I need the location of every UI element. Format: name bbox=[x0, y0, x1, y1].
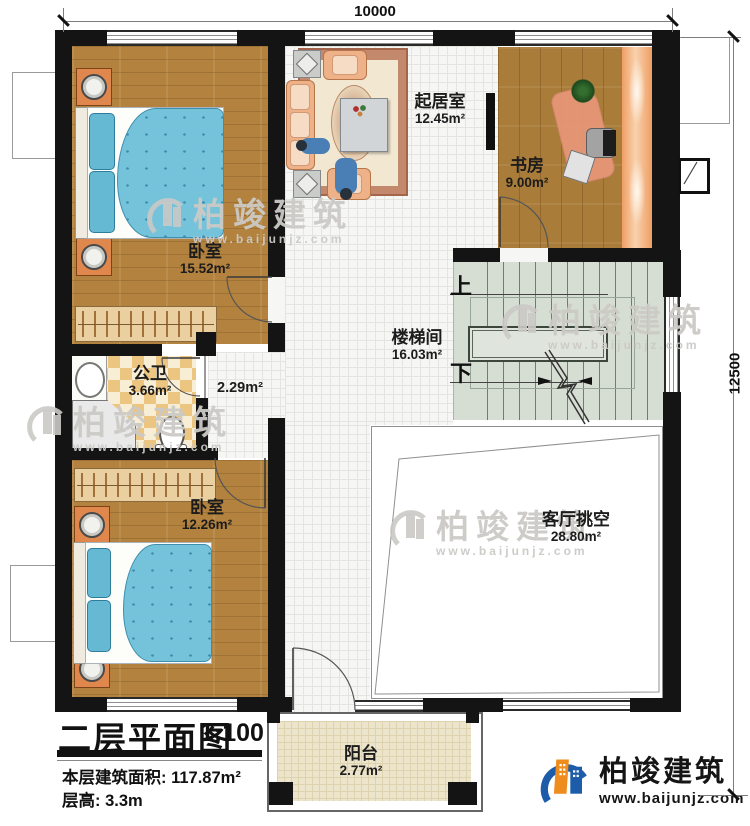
room-label-balcony: 阳台 2.77m² bbox=[318, 744, 404, 778]
lamp-icon bbox=[81, 74, 107, 100]
pillow bbox=[89, 171, 115, 233]
room-area: 3.66m² bbox=[108, 383, 192, 398]
wall bbox=[55, 448, 218, 460]
side-table bbox=[293, 170, 321, 198]
lamp-icon bbox=[81, 244, 107, 270]
room-label-bedroom-bottom: 卧室 12.26m² bbox=[152, 498, 262, 532]
room-area: 12.45m² bbox=[396, 111, 484, 126]
table-flowers bbox=[352, 104, 368, 118]
window bbox=[515, 30, 652, 46]
room-name: 公卫 bbox=[108, 364, 192, 383]
room-label-void: 客厅挑空 28.80m² bbox=[524, 510, 628, 544]
wall bbox=[433, 30, 515, 46]
wall bbox=[268, 323, 285, 352]
sink bbox=[75, 362, 105, 398]
pillow bbox=[89, 113, 115, 170]
flip-window bbox=[678, 158, 710, 194]
title-divider bbox=[57, 750, 262, 757]
sofa-cushion bbox=[290, 112, 310, 138]
room-area: 15.52m² bbox=[150, 261, 260, 276]
floor-height-line: 层高: 3.3m bbox=[62, 787, 143, 811]
right-bay-platform bbox=[678, 37, 730, 124]
floor-area-value: 117.87m² bbox=[171, 769, 241, 787]
lamp-icon bbox=[79, 512, 105, 538]
floor-area-line: 本层建筑面积: 117.87m² bbox=[62, 764, 241, 788]
brand-logo: 柏竣建筑 www.baijunjz.com bbox=[537, 752, 744, 812]
sofa bbox=[286, 80, 315, 170]
nightstand bbox=[76, 68, 112, 106]
floor-height-value: 3.3m bbox=[105, 792, 143, 810]
study-window-light bbox=[622, 47, 652, 248]
wall bbox=[55, 697, 107, 712]
floor-plan-canvas: 柏竣建筑www.baijunjz.com 柏竣建筑www.baijunjz.co… bbox=[0, 0, 750, 826]
title-divider-thin bbox=[57, 760, 262, 761]
brand-logo-icon bbox=[537, 752, 591, 812]
room-name: 卧室 bbox=[152, 498, 262, 517]
wall bbox=[55, 30, 72, 712]
wall bbox=[423, 698, 503, 712]
stair-up-label: 上 bbox=[450, 269, 472, 301]
room-label-living: 起居室 12.45m² bbox=[396, 92, 484, 126]
nightstand bbox=[74, 506, 110, 544]
pillow bbox=[87, 600, 111, 652]
dim-line-right bbox=[733, 37, 734, 795]
balcony-fixed-panel bbox=[355, 700, 423, 712]
wall bbox=[652, 30, 680, 250]
window bbox=[305, 30, 433, 46]
door-opening bbox=[500, 248, 548, 262]
room-name: 楼梯间 bbox=[370, 328, 464, 347]
window bbox=[107, 30, 237, 46]
room-label-bathroom: 公卫 3.66m² bbox=[108, 364, 192, 398]
wall bbox=[268, 455, 285, 712]
wall bbox=[268, 30, 285, 277]
wall bbox=[55, 344, 162, 356]
balcony-stub-left bbox=[267, 712, 280, 723]
person-head bbox=[296, 140, 307, 151]
tv bbox=[486, 93, 495, 150]
room-area: 9.00m² bbox=[485, 175, 569, 190]
wall bbox=[548, 248, 680, 262]
sofa-cushion bbox=[290, 84, 310, 110]
stair-down-label: 下 bbox=[450, 356, 472, 388]
wall bbox=[630, 698, 680, 712]
balcony-stub-right bbox=[466, 712, 479, 723]
stair-up-line bbox=[450, 294, 608, 295]
bed-blanket bbox=[123, 544, 212, 662]
window bbox=[107, 697, 237, 712]
dim-height-value: 12500 bbox=[727, 336, 744, 412]
floor-height-label: 层高: bbox=[62, 792, 101, 810]
person-head bbox=[340, 188, 352, 200]
wall bbox=[453, 248, 500, 262]
room-name: 客厅挑空 bbox=[524, 510, 628, 529]
room-area: 2.77m² bbox=[318, 763, 404, 778]
room-name: 卧室 bbox=[150, 242, 260, 261]
stair-landing bbox=[468, 326, 608, 362]
room-name: 起居室 bbox=[396, 92, 484, 111]
door-opening bbox=[268, 277, 285, 323]
room-label-study: 书房 9.00m² bbox=[485, 156, 569, 190]
room-area: 2.29m² bbox=[198, 380, 282, 396]
left-bottom-platform bbox=[10, 565, 59, 642]
wall bbox=[196, 332, 216, 356]
pillow bbox=[87, 548, 111, 598]
armchair bbox=[323, 50, 367, 80]
plan-scale: 1:100 bbox=[200, 719, 264, 748]
room-label-bedroom-top: 卧室 15.52m² bbox=[150, 242, 260, 276]
balcony-corner-right bbox=[448, 782, 477, 805]
nightstand bbox=[76, 238, 112, 276]
armchair-cushion bbox=[332, 55, 358, 75]
wall bbox=[663, 392, 681, 712]
wardrobe bbox=[74, 468, 216, 502]
lamp-icon bbox=[296, 53, 319, 76]
room-area: 28.80m² bbox=[524, 529, 628, 544]
void-outline bbox=[371, 426, 663, 699]
room-label-corridor: 2.29m² bbox=[198, 380, 282, 396]
window bbox=[664, 297, 680, 392]
dim-line-top bbox=[63, 21, 673, 22]
room-name: 书房 bbox=[485, 156, 569, 175]
floor-area-label: 本层建筑面积: bbox=[62, 769, 167, 787]
wall bbox=[268, 418, 285, 460]
room-name: 阳台 bbox=[318, 744, 404, 763]
window bbox=[503, 700, 630, 711]
hall-lower-floor bbox=[285, 425, 370, 712]
brand-website: www.baijunjz.com bbox=[599, 790, 744, 807]
plant bbox=[571, 79, 595, 103]
lamp-icon bbox=[296, 173, 319, 196]
side-table bbox=[293, 50, 321, 78]
room-area: 12.26m² bbox=[152, 517, 262, 532]
bed-blanket bbox=[117, 108, 224, 238]
dim-ext bbox=[700, 795, 748, 796]
balcony-corner-left bbox=[269, 782, 293, 805]
brand-name: 柏竣建筑 bbox=[599, 758, 727, 787]
dim-width-value: 10000 bbox=[330, 3, 420, 20]
monitor bbox=[603, 130, 616, 156]
